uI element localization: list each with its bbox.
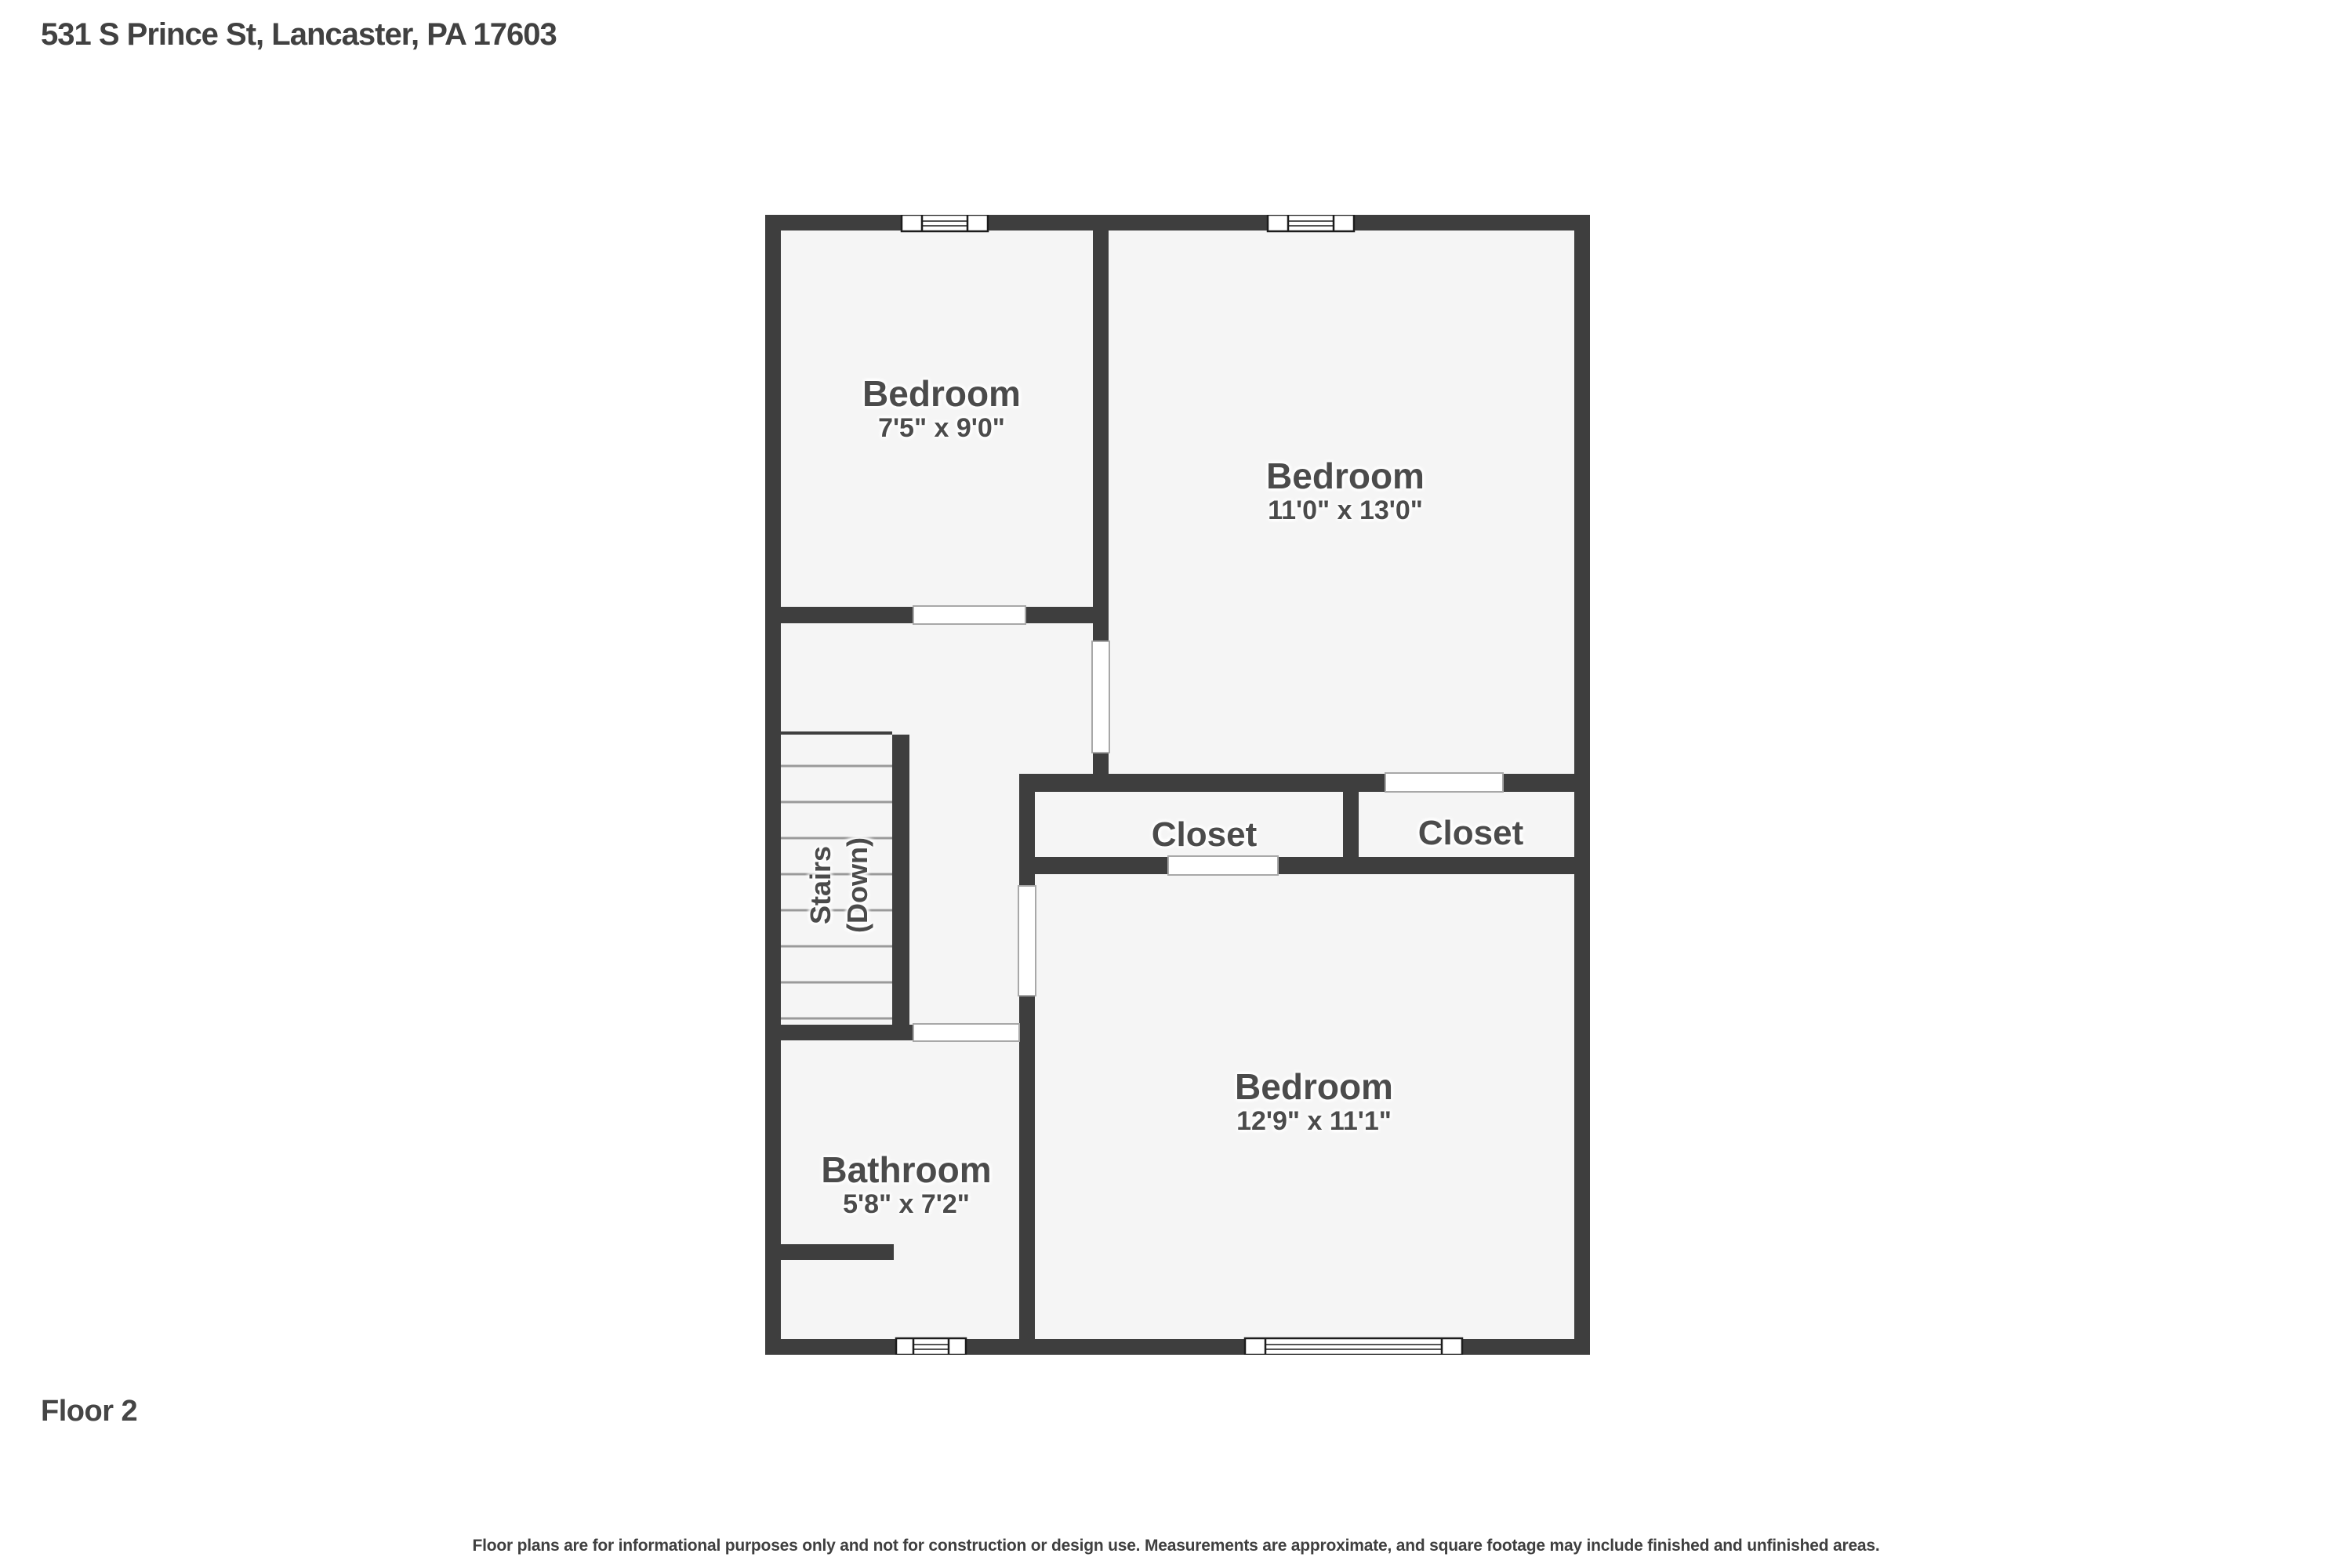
disclaimer-text: Floor plans are for informational purpos… [0,1537,2352,1555]
window-bedroom-top-left [902,215,988,231]
room-dims: 11'0" x 13'0" [1266,496,1425,525]
room-label-bedroom-top-right: Bedroom 11'0" x 13'0" [1266,456,1425,525]
room-name: Bedroom [1266,456,1425,496]
room-label-bedroom-bottom: Bedroom 12'9" x 11'1" [1235,1067,1393,1136]
room-label-closet-left: Closet [1152,815,1257,855]
room-label-bedroom-top-left: Bedroom 7'5" x 9'0" [862,374,1021,443]
room-name: Closet [1418,814,1523,853]
window-bedroom-top-right [1268,215,1354,231]
room-label-closet-right: Closet [1418,814,1523,853]
room-name: Closet [1152,815,1257,855]
window-bathroom [896,1338,966,1355]
room-name: Bathroom [821,1150,991,1190]
floor-label: Floor 2 [41,1395,137,1428]
stairs-name: Stairs [803,837,840,933]
address-title: 531 S Prince St, Lancaster, PA 17603 [41,17,557,53]
room-name: Bedroom [862,374,1021,414]
floor-plan-page: 531 S Prince St, Lancaster, PA 17603 [0,0,2352,1568]
stairs-direction: (Down) [840,837,877,933]
room-dims: 12'9" x 11'1" [1235,1107,1393,1136]
floor-plan: Bedroom 7'5" x 9'0" Bedroom 11'0" x 13'0… [765,215,1590,1355]
room-dims: 7'5" x 9'0" [862,414,1021,443]
window-bedroom-bottom [1245,1338,1462,1355]
room-dims: 5'8" x 7'2" [821,1190,991,1219]
room-label-stairs: Stairs (Down) [803,837,877,933]
room-name: Bedroom [1235,1067,1393,1107]
room-label-bathroom: Bathroom 5'8" x 7'2" [821,1150,991,1219]
